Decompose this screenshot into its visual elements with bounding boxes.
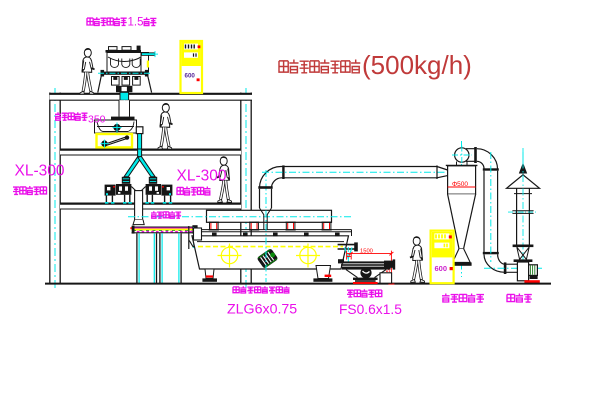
svg-text:ZLG6x0.75: ZLG6x0.75 [227,302,297,318]
svg-text:FS0.6x1.5: FS0.6x1.5 [339,302,402,317]
svg-text:600: 600 [435,264,448,273]
svg-text:1.5: 1.5 [128,17,144,29]
svg-text:600: 600 [185,73,196,80]
svg-text:XL-300: XL-300 [15,163,65,180]
svg-text:XL-300: XL-300 [177,168,227,185]
svg-text:(500kg/h): (500kg/h) [362,50,472,80]
svg-text:Φ500: Φ500 [452,181,468,188]
svg-text:350: 350 [88,114,106,126]
svg-text:1500: 1500 [360,249,373,255]
